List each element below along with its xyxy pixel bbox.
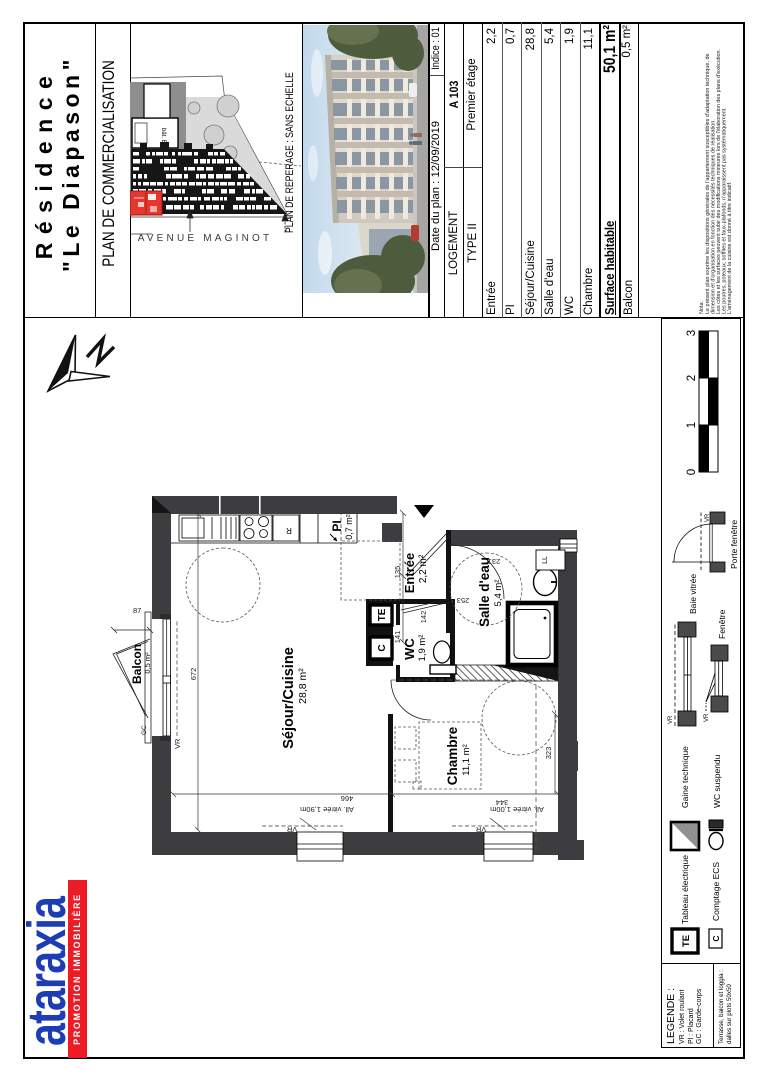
svg-text:VR: VR	[173, 738, 182, 749]
svg-text:0,5 m²: 0,5 m²	[143, 652, 152, 674]
svg-text:253: 253	[457, 596, 470, 605]
svg-text:466: 466	[341, 794, 354, 803]
svg-text:141: 141	[393, 631, 402, 644]
svg-text:1,9 m²: 1,9 m²	[417, 635, 428, 662]
svg-text:All. vitrée 1,90m: All. vitrée 1,90m	[300, 805, 354, 814]
svg-text:135: 135	[393, 566, 402, 579]
svg-text:323: 323	[544, 747, 553, 760]
svg-text:231: 231	[488, 557, 501, 566]
svg-text:C: C	[377, 644, 388, 651]
svg-text:11,1 m²: 11,1 m²	[461, 744, 472, 776]
svg-text:GC: GC	[141, 725, 148, 735]
svg-text:Chambre: Chambre	[445, 726, 460, 785]
svg-text:All. vitrée 1,00m: All. vitrée 1,00m	[490, 805, 544, 814]
svg-text:Séjour/Cuisine: Séjour/Cuisine	[281, 647, 297, 749]
svg-text:Salle d'eau: Salle d'eau	[477, 557, 492, 627]
svg-text:672: 672	[189, 668, 198, 681]
svg-text:LL: LL	[542, 556, 549, 564]
svg-text:0,7 m²: 0,7 m²	[344, 514, 354, 540]
svg-text:142: 142	[419, 611, 428, 624]
svg-text:TE: TE	[377, 608, 388, 621]
svg-text:R: R	[286, 526, 292, 535]
svg-text:Entrée: Entrée	[402, 553, 417, 593]
svg-text:PI: PI	[330, 520, 344, 531]
svg-text:5,4 m²: 5,4 m²	[493, 580, 504, 607]
svg-text:28,8 m²: 28,8 m²	[297, 668, 309, 704]
svg-text:87: 87	[133, 606, 141, 615]
svg-text:Balcon: Balcon	[130, 644, 144, 684]
svg-text:VR: VR	[475, 825, 486, 834]
svg-text:2,2 m²: 2,2 m²	[418, 554, 429, 583]
svg-text:WC: WC	[402, 638, 417, 660]
svg-text:VR: VR	[286, 825, 297, 834]
